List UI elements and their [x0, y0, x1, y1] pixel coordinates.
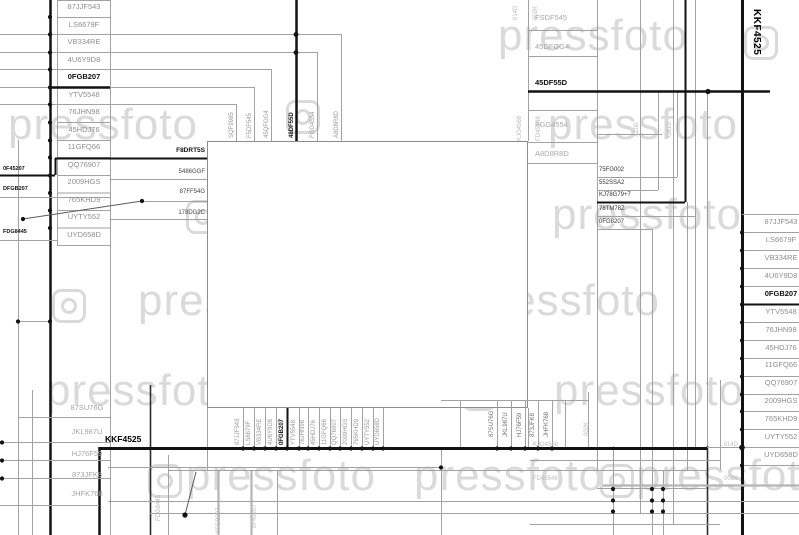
edge-label: 0F45207 — [3, 166, 25, 172]
left-column-label: 11GFQ66 — [68, 143, 100, 152]
mid-pin-label: JKL987U — [503, 412, 510, 437]
connector-label: F8DRT5S — [176, 147, 205, 154]
bottom-pin-label: 765KHD9 — [354, 419, 361, 445]
mid-pin-label: JHFK768 — [544, 412, 551, 437]
ref-label: FD45548 — [533, 476, 558, 483]
left-column-label: YTV5548 — [68, 91, 99, 100]
step-label: KJ78G79+7 — [599, 192, 631, 199]
left-column-label: 87JJF543 — [68, 3, 101, 12]
right-panel-label: 45DFGG4 — [535, 43, 569, 52]
ref-label: 0FGB207 — [216, 507, 223, 533]
bottom-pin-label: 45HDJ76 — [311, 420, 318, 445]
bottom-pin-label: LS6679F — [246, 421, 253, 445]
left-column-label: QQ76907 — [68, 161, 101, 170]
step-label: 0FG8207 — [599, 219, 624, 226]
ref-label: FDG8445 — [156, 495, 163, 521]
right-column-label: QQ76907 — [765, 379, 798, 388]
top-pin-label: SQF9985 — [229, 112, 236, 138]
edge-label: DFGB207 — [3, 186, 28, 192]
bottom-pin-label: VB334RE — [257, 419, 264, 445]
bottom-pin-label: UYTY552 — [365, 419, 372, 445]
bottom-pin-label: QQ76907 — [332, 419, 339, 445]
step-label: 552SSA2 — [599, 180, 624, 187]
right-column-label: 76JHN98 — [765, 326, 796, 335]
bus-title-bottom: KKF4525 — [105, 435, 141, 445]
left-column-label: 0FGB207 — [68, 73, 101, 82]
right-column-label: 2009HGS — [765, 397, 798, 406]
bottom-pin-label: 4U6Y9D8 — [268, 419, 275, 445]
right-column-label: YTV5548 — [765, 308, 796, 317]
bottom-pin-label: UYD658D — [375, 418, 382, 445]
right-column-label: UYTY552 — [765, 433, 798, 442]
ref-label: 002K — [584, 422, 591, 436]
left-row-label: JKL987U — [72, 428, 103, 437]
left-column-label: 76JHN98 — [68, 108, 99, 117]
left-column-label: VB334RE — [68, 38, 101, 47]
left-column-label: 4U6Y9D8 — [68, 56, 101, 65]
mid-pin-label: 87SU76G — [489, 411, 496, 437]
mid-pin-label: HJ76F59 — [517, 413, 524, 437]
ref-label: G810 — [667, 122, 674, 137]
right-column-label: UYD658D — [764, 451, 798, 460]
bottom-pin-label: 2009HGS — [343, 419, 350, 445]
edge-label: FDG8445 — [3, 229, 27, 235]
connector-label: 5486GGF — [179, 169, 205, 176]
left-row-label: HJ76F59 — [72, 450, 102, 459]
ref-label: XZ00 — [634, 123, 641, 137]
left-column-label: UYD658D — [67, 231, 101, 240]
bottom-pin-label: 11GFQ66 — [322, 419, 329, 445]
top-pin-label: FGG4554 — [310, 112, 317, 138]
right-panel-label: A8D8R8D — [535, 150, 569, 159]
ref-label: 002K — [533, 6, 540, 20]
connector-label: 87FF54G — [180, 189, 205, 196]
right-column-label: VB334RE — [765, 254, 798, 263]
top-pin-label: F5DF545 — [247, 113, 254, 138]
left-column-label: 765KHD9 — [68, 196, 101, 205]
ref-label: 0F45207 — [252, 504, 259, 528]
step-label: 78TM78Z — [599, 206, 625, 213]
ref-label: KJG4568 — [517, 116, 524, 141]
right-column-label: 0FGB207 — [765, 290, 798, 299]
top-pin-label: A8D8R8D — [334, 111, 341, 138]
connector-label: 178DG2C — [178, 210, 205, 217]
ref-label: 014D — [513, 6, 520, 20]
mid-pin-label: 873JFK8 — [530, 413, 537, 437]
left-row-label: 87SU76G — [71, 404, 104, 413]
right-column-label: 87JJF543 — [765, 218, 798, 227]
ref-label: FD45648 — [536, 116, 543, 141]
right-column-label: 45HDJ76 — [765, 344, 796, 353]
bottom-pin-label: 0FGB207 — [279, 419, 286, 445]
bus-title-right: KKF4525 — [751, 9, 763, 55]
left-row-label: 873JFK8 — [72, 471, 102, 480]
ref-label: KJG4568 — [533, 442, 558, 449]
top-pin-label: 48DF55D — [289, 112, 296, 138]
right-column-label: 11GFQ66 — [765, 361, 797, 370]
schematic-canvas: pressfotopressfotopressfotopressfotopres… — [0, 0, 799, 535]
bottom-pin-label: YTV5548 — [291, 420, 298, 445]
left-column-label: 45HDJ76 — [68, 126, 99, 135]
ref-label: 014D — [724, 442, 738, 449]
left-column-label: LS6679F — [69, 21, 99, 30]
right-column-label: 4U6Y9D8 — [765, 272, 798, 281]
left-column-label: 2009HGS — [68, 178, 101, 187]
left-column-label: UYTY552 — [68, 213, 101, 222]
ref-label: 002K — [724, 476, 738, 483]
step-label: 75FG002 — [599, 167, 624, 174]
right-column-label: LS6679F — [766, 236, 796, 245]
bottom-pin-label: 87JJF543 — [235, 419, 242, 445]
right-column-label: 765KHD9 — [765, 415, 798, 424]
right-panel-label: 45DF55D — [535, 79, 567, 88]
left-row-label: JHFK768 — [71, 490, 102, 499]
bottom-pin-label: 76JHN98 — [300, 420, 307, 445]
top-pin-label: 45QFGG4 — [264, 110, 271, 138]
